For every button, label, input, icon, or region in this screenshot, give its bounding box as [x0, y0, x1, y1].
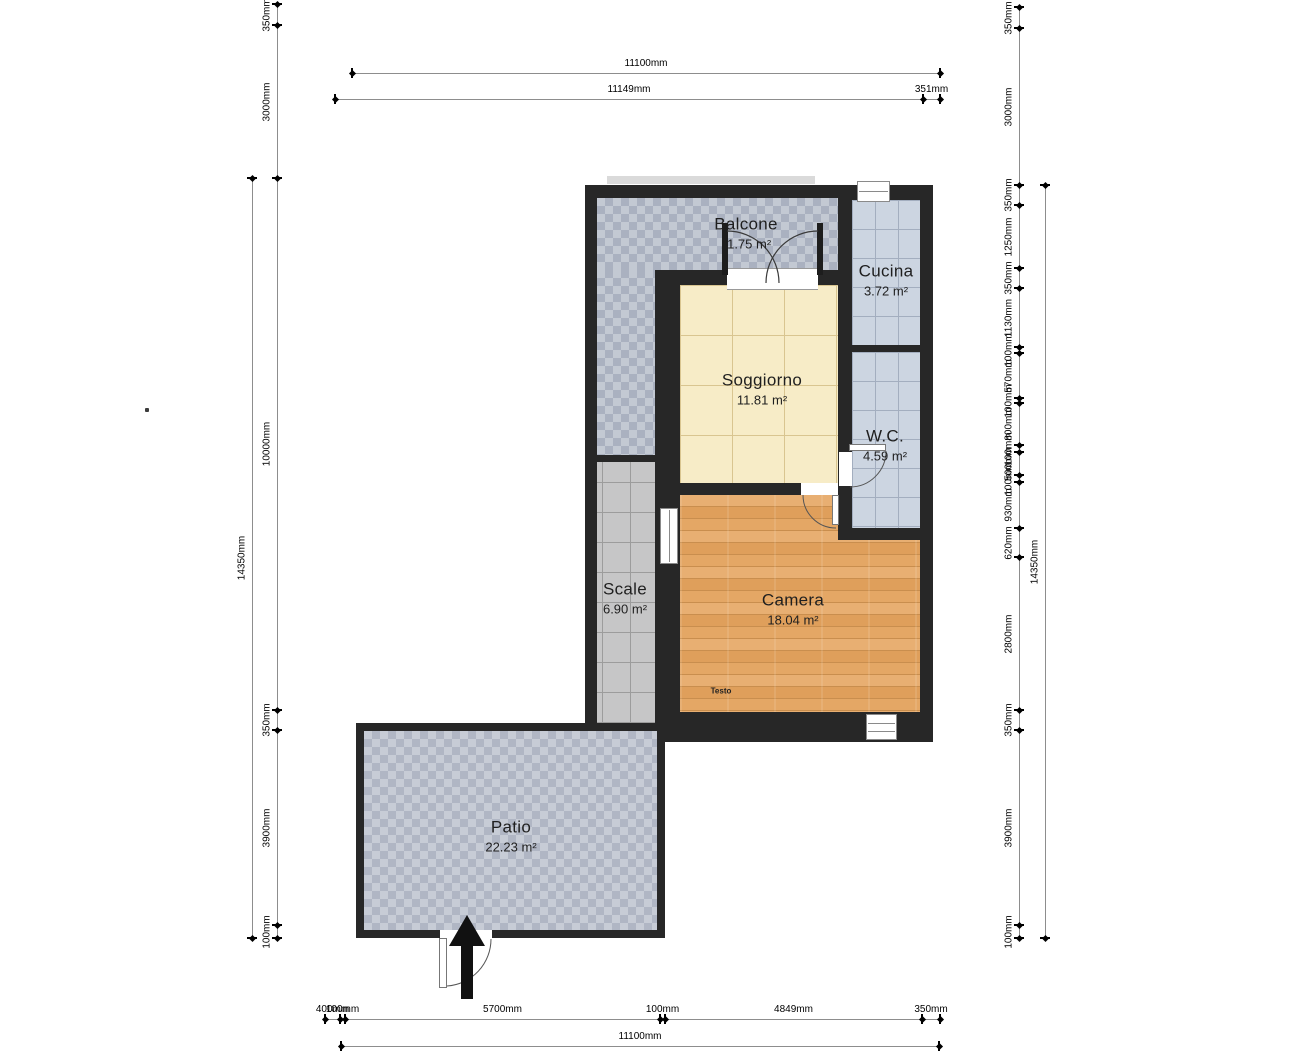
floorplan-sheet: 11100mm11149mm351mm400mm100mm5700mm100mm… — [0, 0, 1300, 1062]
entrance-door-opening — [440, 930, 492, 938]
entrance-door-swing — [447, 939, 491, 986]
camera-door-leaf — [832, 495, 839, 525]
text-annotation: Testo — [711, 687, 732, 696]
balcony-door-opening — [727, 268, 818, 290]
camera-window — [866, 714, 897, 740]
balcony-door-left-leaf — [722, 223, 728, 275]
floor-plan: Balcone 11.75 m² Cucina 3.72 m² Soggiorn… — [0, 0, 1300, 1062]
cucina-floor — [852, 200, 920, 345]
wc-floor — [852, 352, 920, 528]
cucina-window — [857, 181, 890, 202]
stray-mark — [145, 408, 149, 412]
balcony-railing — [607, 176, 815, 184]
soggiorno-floor — [680, 285, 838, 483]
balcony-door-right-leaf — [817, 223, 823, 275]
camera-door-opening — [801, 483, 838, 495]
wc-door-opening — [839, 452, 852, 486]
entrance-door-leaf — [439, 938, 447, 988]
stair-wall-window — [660, 508, 678, 564]
balcone-floor-strip — [597, 270, 655, 455]
wc-door-leaf — [849, 444, 886, 451]
balcone-floor — [597, 198, 838, 270]
patio-floor — [364, 731, 657, 930]
scale-stairs — [597, 462, 655, 723]
